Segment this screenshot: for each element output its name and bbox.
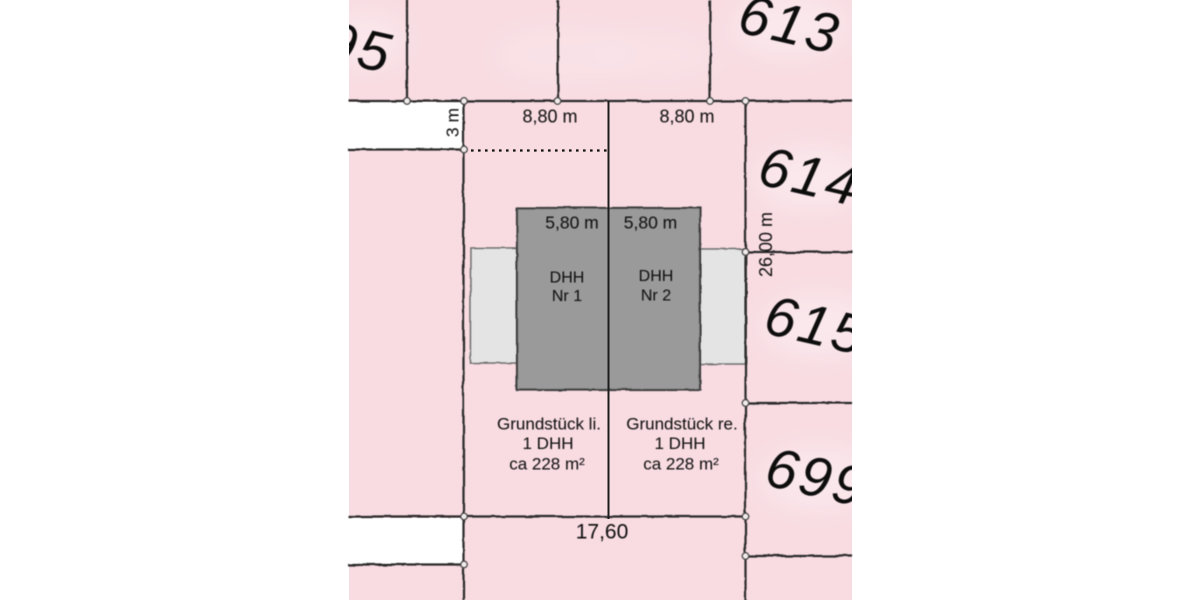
svg-text:ca 228 m²: ca 228 m² (509, 455, 585, 474)
svg-text:Nr 2: Nr 2 (641, 288, 671, 305)
svg-text:Grundstück li.: Grundstück li. (497, 415, 601, 434)
svg-text:DHH: DHH (639, 268, 674, 285)
svg-text:DHH: DHH (550, 270, 585, 287)
svg-text:Nr 1: Nr 1 (552, 288, 582, 305)
svg-text:ca 228 m²: ca 228 m² (643, 455, 719, 474)
svg-text:17,60: 17,60 (576, 521, 629, 544)
svg-text:1 DHH: 1 DHH (654, 434, 705, 453)
svg-text:5,80 m: 5,80 m (545, 213, 599, 233)
svg-text:3 m: 3 m (443, 108, 463, 137)
svg-text:1 DHH: 1 DHH (522, 434, 573, 453)
svg-text:26,00 m: 26,00 m (756, 212, 776, 277)
svg-text:Grundstück re.: Grundstück re. (626, 415, 738, 434)
svg-text:8,80 m: 8,80 m (522, 107, 577, 127)
svg-text:8,80 m: 8,80 m (659, 107, 714, 127)
svg-text:5,80 m: 5,80 m (624, 213, 678, 233)
